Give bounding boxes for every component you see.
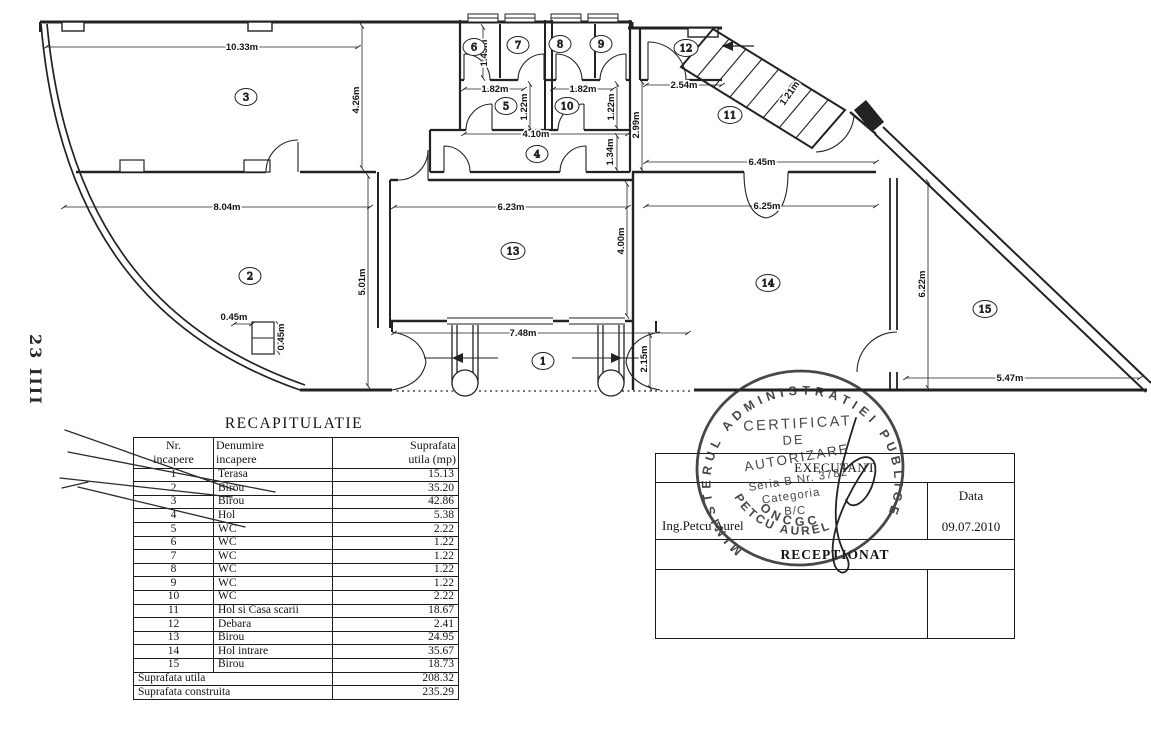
room-number-cell: 2 [134, 482, 214, 496]
table-row: 15Birou18.73 [134, 658, 459, 672]
dim-column-w: 0.45m [221, 312, 248, 323]
room-area-cell: 42.86 [333, 495, 459, 509]
room-area-cell: 1.22 [333, 550, 459, 564]
room-14-marker: 14 [762, 279, 775, 290]
table-row: 7WC1.22 [134, 550, 459, 564]
room-number-cell: 13 [134, 631, 214, 645]
executant-label: EXECUTANT [794, 460, 875, 476]
date-value: 09.07.2010 [942, 519, 1001, 535]
dim-terrace-width: 7.48m [510, 328, 537, 339]
table-row: 5WC2.22 [134, 522, 459, 536]
dim-room11-height: 2.99m [631, 112, 642, 139]
table-row: 14Hol intrare35.67 [134, 645, 459, 659]
dim-wc-pair2-width: 1.82m [570, 84, 597, 95]
room-5-marker: 5 [503, 102, 509, 113]
room-name-cell: Birou [214, 658, 333, 672]
scanned-floor-plan-page: RECAPITULATIE Nr. incapere Denumire inca… [0, 0, 1151, 749]
interior-walls [76, 20, 897, 390]
room-area-cell: 24.95 [333, 631, 459, 645]
table-row: 8WC1.22 [134, 563, 459, 577]
room-area-cell: 2.22 [333, 522, 459, 536]
room-name-cell: WC [214, 536, 333, 550]
room-6-marker: 6 [471, 43, 477, 54]
room-number-cell: 5 [134, 522, 214, 536]
dim-wc-top-height: 1.45m [479, 40, 490, 67]
room-area-cell: 18.73 [333, 658, 459, 672]
room-11-marker: 11 [724, 111, 737, 122]
room-number-cell: 7 [134, 550, 214, 564]
table-row: 6WC1.22 [134, 536, 459, 550]
total-construita-value: 235.29 [333, 686, 459, 700]
stair-direction-arrow [722, 41, 733, 51]
total-utila-label: Suprafata utila [134, 672, 333, 686]
room-10-marker: 10 [561, 102, 574, 113]
table-row: 11Hol si Casa scarii18.67 [134, 604, 459, 618]
header-nr: Nr. incapere [134, 438, 214, 469]
table-row: 4Hol5.38 [134, 509, 459, 523]
table-row: 12Debara2.41 [134, 618, 459, 632]
room-area-cell: 1.22 [333, 563, 459, 577]
recap-table-body: 1Terasa15.132Birou35.203Birou42.864Hol5.… [134, 468, 459, 672]
room-number-cell: 15 [134, 658, 214, 672]
header-area: Suprafata utila (mp) [333, 438, 459, 469]
dim-room13-width: 6.23m [498, 202, 525, 213]
recap-table-header: Nr. incapere Denumire incapere Suprafata… [134, 438, 459, 469]
room-name-cell: WC [214, 522, 333, 536]
recap-title: RECAPITULATIE [133, 415, 455, 433]
header-name: Denumire incapere [214, 438, 333, 469]
dim-wc10-height: 1.22m [606, 94, 617, 121]
dim-room3-height: 4.26m [351, 87, 362, 114]
room-number-cell: 10 [134, 590, 214, 604]
room-number-cell: 1 [134, 468, 214, 482]
room-area-cell: 1.22 [333, 536, 459, 550]
room-name-cell: WC [214, 563, 333, 577]
dim-room2-width: 8.04m [214, 202, 241, 213]
room-name-cell: WC [214, 590, 333, 604]
table-row: 10WC2.22 [134, 590, 459, 604]
room-number-cell: 6 [134, 536, 214, 550]
dim-room14-width: 6.25m [754, 201, 781, 212]
table-row: 13Birou24.95 [134, 631, 459, 645]
room-name-cell: WC [214, 550, 333, 564]
staircase [681, 29, 884, 148]
room-area-cell: 2.41 [333, 618, 459, 632]
dim-wc5-height: 1.22m [519, 94, 530, 121]
room-markers: 1 2 3 4 5 6 7 8 9 10 11 12 13 14 15 [235, 36, 997, 370]
room-area-cell: 5.38 [333, 509, 459, 523]
margin-note: 23 IIII [26, 334, 45, 406]
section-arrow-left [452, 353, 463, 363]
table-row: 9WC1.22 [134, 577, 459, 591]
room-number-cell: 9 [134, 577, 214, 591]
dim-room15-height: 6.22m [917, 271, 928, 298]
dim-stair-width: 1.21m [778, 79, 802, 107]
room-name-cell: Debara [214, 618, 333, 632]
door-swings [266, 42, 897, 390]
dim-room3-width: 10.33m [226, 42, 258, 53]
table-row: 1Terasa15.13 [134, 468, 459, 482]
room-number-cell: 8 [134, 563, 214, 577]
dim-wc-pair1-width: 1.82m [482, 84, 509, 95]
room-2-marker: 2 [247, 272, 253, 283]
total-construita-label: Suprafata construita [134, 686, 333, 700]
room-number-cell: 12 [134, 618, 214, 632]
room-7-marker: 7 [515, 41, 521, 52]
engineer-name: Ing.Petcu Aurel [662, 518, 744, 534]
room-number-cell: 11 [134, 604, 214, 618]
room-name-cell: WC [214, 577, 333, 591]
total-utila-row: Suprafata utila 208.32 [134, 672, 459, 686]
room-8-marker: 8 [557, 40, 563, 51]
dim-column-h: 0.45m [276, 324, 287, 351]
dimension-labels: 10.33m 4.26m 8.04m 5.01m 0.45m 0.45m 6.2… [214, 40, 1024, 384]
dim-room13-height: 4.00m [616, 228, 627, 255]
empty-row [656, 570, 1014, 638]
total-construita-row: Suprafata construita 235.29 [134, 686, 459, 700]
room-number-cell: 4 [134, 509, 214, 523]
recap-table: Nr. incapere Denumire incapere Suprafata… [133, 437, 459, 700]
room-area-cell: 35.67 [333, 645, 459, 659]
room-area-cell: 2.22 [333, 590, 459, 604]
room-12-marker: 12 [680, 44, 693, 55]
room-area-cell: 15.13 [333, 468, 459, 482]
empty-cell-right [927, 570, 1014, 638]
room-15-marker: 15 [979, 305, 992, 316]
room-9-marker: 9 [598, 40, 604, 51]
room-number-cell: 14 [134, 645, 214, 659]
receptionat-row: RECEPTIONAT [656, 540, 1014, 570]
entry-door-leaf [854, 100, 884, 132]
outer-walls [40, 14, 1151, 392]
room-3-marker: 3 [243, 93, 249, 104]
room-4-marker: 4 [534, 150, 540, 161]
room-13-marker: 13 [507, 247, 520, 258]
dim-hall4-height: 1.34m [605, 139, 616, 166]
recap-table-totals: Suprafata utila 208.32 Suprafata constru… [134, 672, 459, 699]
receptionat-label: RECEPTIONAT [780, 547, 889, 563]
section-arrow-right [611, 353, 622, 363]
dim-room11-width: 6.45m [749, 157, 776, 168]
room-name-cell: Hol si Casa scarii [214, 604, 333, 618]
engineer-cell: Ing.Petcu Aurel [656, 483, 927, 539]
room-name-cell: Terasa [214, 468, 333, 482]
stamp-line1: CERTIFICAT [743, 413, 853, 435]
room-name-cell: Hol [214, 509, 333, 523]
room-area-cell: 1.22 [333, 577, 459, 591]
date-cell: Data 09.07.2010 [927, 483, 1014, 539]
room-area-cell: 35.20 [333, 482, 459, 496]
empty-cell-left [656, 570, 927, 638]
engineer-row: Ing.Petcu Aurel Data 09.07.2010 [656, 483, 1014, 540]
room-number-cell: 3 [134, 495, 214, 509]
dim-hall4-width: 4.10m [523, 129, 550, 140]
table-row: 2Birou35.20 [134, 482, 459, 496]
stamp-line2: DE [782, 432, 805, 448]
room-name-cell: Hol intrare [214, 645, 333, 659]
room-name-cell: Birou [214, 495, 333, 509]
executant-row: EXECUTANT [656, 454, 1014, 483]
dimension-lines [46, 26, 1140, 388]
total-utila-value: 208.32 [333, 672, 459, 686]
dim-terrace-depth: 2.15m [639, 346, 650, 373]
terrace-pillars [424, 325, 646, 396]
title-block: EXECUTANT Ing.Petcu Aurel Data 09.07.201… [655, 453, 1015, 639]
room-area-cell: 18.67 [333, 604, 459, 618]
table-row: 3Birou42.86 [134, 495, 459, 509]
room-1-marker: 1 [540, 357, 546, 368]
room-name-cell: Birou [214, 482, 333, 496]
dim-room12-width: 2.54m [671, 80, 698, 91]
dim-room15-width: 5.47m [997, 373, 1024, 384]
room-name-cell: Birou [214, 631, 333, 645]
dim-room2-height: 5.01m [357, 269, 368, 296]
data-label: Data [959, 488, 984, 504]
